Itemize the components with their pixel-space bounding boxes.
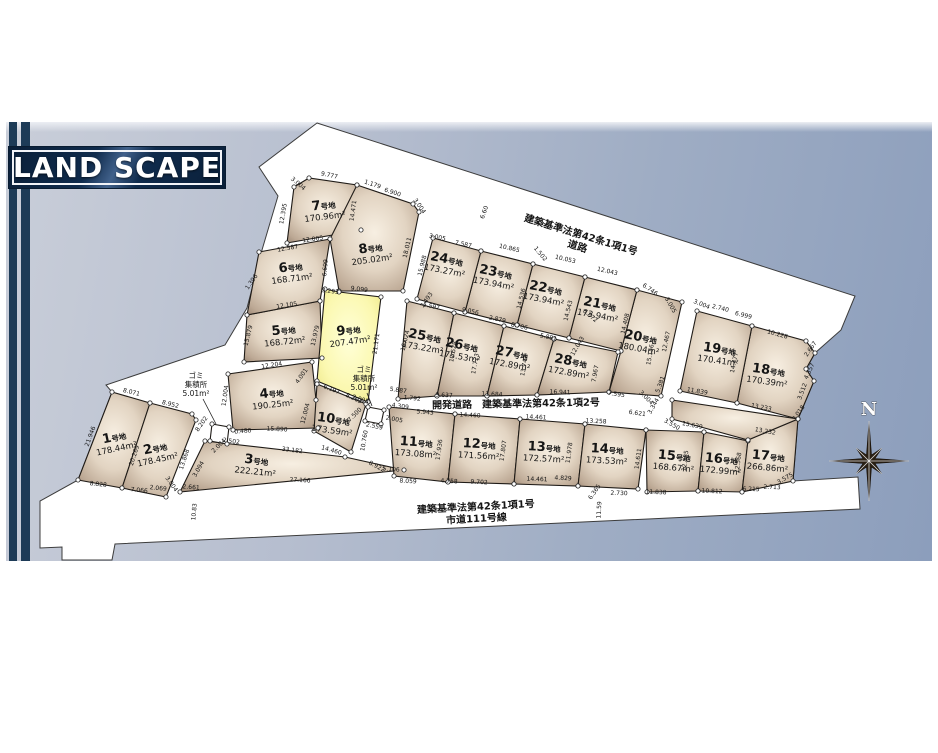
vertex-dot [164, 495, 168, 499]
vertex-dot [636, 487, 640, 491]
vertex-dot [670, 398, 674, 402]
vertex-dot [401, 289, 405, 293]
vertex-dot [791, 479, 795, 483]
vertex-dot [359, 228, 363, 232]
vertex-dot [210, 422, 214, 426]
vertex-dot [479, 249, 483, 253]
vertex-dot [110, 390, 114, 394]
vertex-dot [750, 324, 754, 328]
vertex-dot [343, 455, 347, 459]
dimension-label: 27.166 [289, 476, 311, 484]
vertex-dot [680, 300, 684, 304]
landscape-banner: LAND SCAPE [8, 146, 226, 189]
vertex-dot [415, 297, 419, 301]
vertex-dot [257, 250, 261, 254]
vertex-dot [76, 478, 80, 482]
vertex-dot [812, 379, 816, 383]
compass-north-label: N [861, 399, 877, 420]
dimension-label: 15.890 [266, 425, 288, 433]
dimension-label: 4.758 [440, 478, 458, 486]
vertex-dot [396, 397, 400, 401]
vertex-dot [148, 401, 152, 405]
vertex-dot [227, 425, 231, 429]
dimension-label: 11.838 [645, 489, 666, 497]
landscape-banner-frame: LAND SCAPE [12, 150, 222, 185]
vertex-dot [320, 356, 324, 360]
dimension-label: 16.941 [549, 389, 570, 397]
vertex-dot [583, 275, 587, 279]
vertex-dot [696, 489, 700, 493]
svg-text:集積所: 集積所 [185, 379, 208, 389]
dimension-label: 11.684 [481, 391, 502, 399]
vertex-dot [804, 339, 808, 343]
vertex-dot [194, 418, 198, 422]
vertex-dot [402, 468, 406, 472]
vertex-dot [518, 417, 522, 421]
dimension-label: 2.730 [610, 490, 628, 498]
vertex-dot [242, 360, 246, 364]
dimension-label: 14.461 [526, 476, 547, 484]
vertex-dot [746, 438, 750, 442]
dimension-label: 4.829 [554, 475, 572, 483]
vertex-dot [382, 408, 386, 412]
vertex-dot [315, 382, 319, 386]
vertex-dot [318, 299, 322, 303]
dimension-label: 2.661 [182, 483, 200, 491]
vertex-dot [695, 309, 699, 313]
vertex-dot [208, 439, 212, 443]
vertex-dot [453, 412, 457, 416]
vertex-dot [735, 401, 739, 405]
dimension-label: 11.59 [596, 501, 604, 519]
page: 9.7773.0041.1796.9003.00412.39514.47112.… [0, 0, 938, 753]
svg-text:5.01m²: 5.01m² [350, 383, 377, 392]
vertex-dot [349, 450, 353, 454]
dimension-label: 13.258 [585, 417, 607, 425]
vertex-dot [310, 360, 314, 364]
svg-text:ゴミ: ゴミ [357, 364, 372, 374]
vertex-dot [379, 295, 383, 299]
vertex-dot [307, 176, 311, 180]
site-plan-svg: 9.7773.0041.1796.9003.00412.39514.47112.… [0, 0, 938, 753]
vertex-dot [635, 288, 639, 292]
vertex-dot [535, 393, 539, 397]
vertex-dot [644, 428, 648, 432]
vertex-dot [328, 237, 332, 241]
dimension-label: 14.460 [459, 411, 481, 419]
vertex-dot [226, 372, 230, 376]
dimension-label: 10.812 [701, 488, 722, 496]
vertex-dot [245, 313, 249, 317]
vertex-dot [813, 351, 817, 355]
svg-text:集積所: 集積所 [353, 373, 376, 383]
vertex-dot [366, 405, 370, 409]
vertex-dot [659, 394, 663, 398]
vertex-dot [567, 336, 571, 340]
vertex-dot [190, 412, 194, 416]
vertex-dot [203, 439, 207, 443]
vertex-dot [576, 484, 580, 488]
vertex-dot [531, 262, 535, 266]
dimension-label: 9.637 [435, 392, 453, 400]
vertex-dot [452, 311, 456, 315]
vertex-dot [178, 490, 182, 494]
dimension-label: 6.215 [742, 486, 760, 494]
vertex-dot [512, 482, 516, 486]
vertex-dot [314, 398, 318, 402]
vertex-dot [405, 299, 409, 303]
dimension-label: 14.461 [525, 413, 547, 421]
vertex-dot [678, 389, 682, 393]
vertex-dot [355, 183, 359, 187]
svg-text:ゴミ: ゴミ [189, 370, 204, 380]
dimension-label: 8.059 [399, 478, 417, 486]
vertex-dot [392, 474, 396, 478]
dimension-label: 9.702 [470, 479, 488, 487]
vertex-dot [120, 486, 124, 490]
landscape-banner-title: LAND SCAPE [13, 151, 221, 184]
vertex-dot [702, 430, 706, 434]
svg-text:5.01m²: 5.01m² [182, 389, 209, 398]
